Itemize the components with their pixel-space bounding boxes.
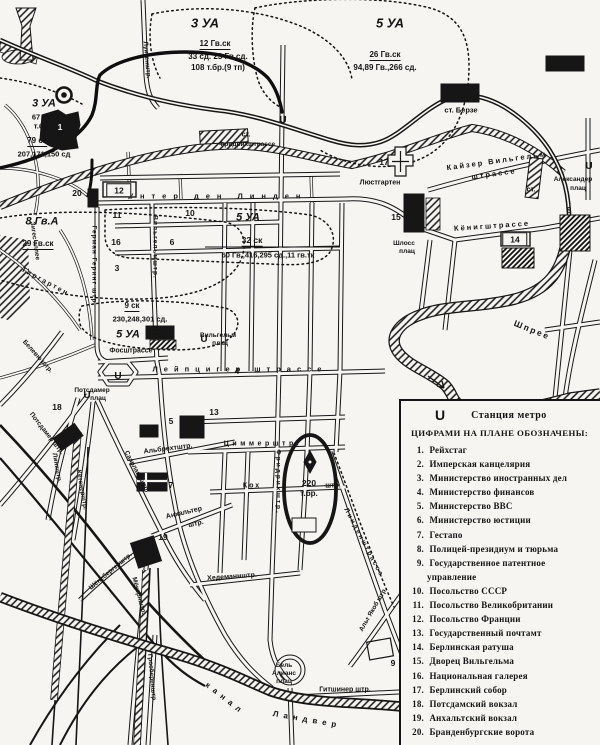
aviation-ministry-building — [180, 416, 204, 438]
street-label: плац — [276, 679, 292, 686]
brandenburg-gate-building — [88, 189, 98, 207]
unit-label: 9 ск — [124, 302, 139, 312]
street-label: Александер — [554, 177, 592, 184]
unit-label: 26 Гв.ск — [369, 51, 400, 61]
unit-5ua-center: 5 УА — [236, 213, 260, 224]
legend-item-number: 7. — [411, 528, 427, 542]
legend-item-number: 15. — [411, 654, 427, 668]
street-label: плац — [90, 396, 106, 403]
legend-item-number: 1. — [411, 443, 427, 457]
legend-item: 15. Дворец Вильгельма — [411, 654, 594, 668]
legend-item: 1. Рейхстаг — [411, 443, 594, 457]
legend-item-number: 6. — [411, 513, 427, 527]
street-label: плац — [399, 249, 415, 256]
map-marker-1: 1 — [58, 123, 63, 132]
station-friedrichstrasse-label: ст. — [242, 132, 251, 139]
metro-station-label: Станция метро — [471, 410, 547, 421]
legend-item: 14. Берлинская ратуша — [411, 640, 594, 654]
unit-label: 33 сд. 23 Гв.сд. — [188, 53, 247, 61]
unit-label: 67 гв. — [32, 113, 52, 121]
street-label: Бель — [276, 663, 292, 670]
unit-label: 60 Гв.,416,295 сд.,11 гв.тк — [222, 251, 315, 259]
building-northeast — [546, 56, 584, 71]
street-label: Лейпцигер штрассе — [153, 365, 328, 373]
map-marker-10: 10 — [185, 209, 194, 218]
unit-label: 32 ск — [242, 236, 263, 247]
legend-item: 8. Полицей-президиум и тюрьма — [411, 542, 594, 556]
legend-item: 18. Потсдамский вокзал — [411, 697, 594, 711]
legend-item: 4. Министерство финансов — [411, 485, 594, 499]
street-label: Фридрихштр. — [274, 449, 281, 515]
police-presidium-building — [560, 215, 590, 251]
metro-station-icon: U — [585, 162, 592, 172]
map-marker-14: 14 — [502, 232, 527, 246]
anhalter-bahnhof-building — [131, 536, 162, 568]
map-marker-12: 12 — [106, 183, 131, 197]
legend-item-number: 3. — [411, 471, 427, 485]
legend-item-number: 5. — [411, 499, 427, 513]
legend-item: 9. Государственное патентное управление — [411, 556, 594, 584]
legend-item: 12. Посольство Франции — [411, 612, 594, 626]
street-label: Потсдамер — [74, 388, 109, 395]
legend-item: 13. Государственный почтамт — [411, 626, 594, 640]
map-marker-13: 13 — [209, 408, 218, 417]
legend-item-number: 16. — [411, 669, 427, 683]
legend-panel: U Станция метро ЦИФРАМИ НА ПЛАНЕ ОБОЗНАЧ… — [399, 399, 600, 745]
street-label: Шлосс — [393, 241, 415, 248]
legend-item-number: 13. — [411, 626, 427, 640]
street-label: Люстгартен — [360, 180, 401, 187]
boerse-station-building — [441, 84, 479, 102]
unit-label: 94,89 Гв.,266 сд. — [353, 64, 416, 72]
unit-label: 207,171,150 сд — [18, 150, 71, 158]
legend-item-number: 11. — [411, 598, 427, 612]
map-marker-20: 20 — [72, 189, 81, 198]
unit-label: 79 ск — [27, 137, 47, 147]
map-marker-8: 8 — [567, 206, 572, 215]
street-label: Вильгельмштр. — [151, 215, 158, 278]
street-label: Гитшинер штр. — [319, 687, 371, 694]
legend-item: 17. Берлинский собор — [411, 683, 594, 697]
street-label: штр. — [325, 483, 340, 490]
legend-item-number: 18. — [411, 697, 427, 711]
unit-label: 108 т.бр.(9 тп) — [191, 64, 245, 72]
legend-item: 3. Министерство иностранных дел — [411, 471, 594, 485]
legend-item: 16. Национальная галерея — [411, 669, 594, 683]
street-label: Кох — [243, 483, 261, 490]
legend-item-number: 19. — [411, 711, 427, 725]
unit-label: 12 Гв.ск — [199, 40, 230, 50]
metro-station-icon: U — [279, 116, 286, 126]
street-label: Унтер ден Линден — [129, 192, 308, 200]
map-marker-19: 19 — [158, 533, 167, 542]
map-marker-16: 16 — [111, 238, 120, 247]
unit-5ua-south: 5 УА — [116, 330, 140, 341]
station-alexanderplatz-label: ст. — [527, 187, 536, 194]
map-marker-6: 6 — [170, 238, 175, 247]
metro-station-icon: U — [83, 391, 90, 401]
map-marker-11: 11 — [113, 211, 122, 220]
stadtschloss-building — [404, 194, 424, 232]
map-marker-2: 2 — [154, 328, 159, 337]
legend-item-number: 17. — [411, 683, 427, 697]
metro-station-icon: U — [200, 335, 207, 345]
unit-3ua-north: 3 УА — [191, 17, 219, 30]
unit-220-tbr: 220 — [302, 479, 316, 488]
metro-station-icon: U — [435, 407, 445, 423]
map-marker-5: 5 — [169, 417, 174, 426]
legend-item: 7. Гестапо — [411, 528, 594, 542]
street-label: Фосштрассе — [109, 348, 152, 355]
station-boerse-label: ст. Берзе — [444, 106, 477, 114]
legend-item-number: 8. — [411, 542, 427, 556]
street-label: Циммерштр. — [224, 441, 302, 448]
legend-item-number: 14. — [411, 640, 427, 654]
legend-item-number: 4. — [411, 485, 427, 499]
metro-station-icon: U — [114, 372, 121, 382]
map-marker-15: 15 — [391, 213, 400, 222]
legend-item-number: 2. — [411, 457, 427, 471]
legend-heading: ЦИФРАМИ НА ПЛАНЕ ОБОЗНАЧЕНЫ: — [411, 428, 594, 438]
unit-5ua-north: 5 УА — [376, 17, 404, 30]
unit-label: т.бр. — [34, 122, 50, 130]
legend-item: 5. Министерство ВВС — [411, 499, 594, 513]
map-marker-7: 7 — [169, 481, 174, 490]
map-marker-4: 4 — [235, 367, 240, 376]
rathaus-building — [502, 248, 534, 268]
map-marker-3: 3 — [115, 264, 120, 273]
street-label: Фридрихштрассе — [219, 142, 275, 149]
legend-metro-row: U Станция метро — [411, 407, 594, 423]
legend-item: 20. Бранденбургские ворота — [411, 725, 594, 739]
legend-item-number: 12. — [411, 612, 427, 626]
unit-3ua-west: 3 УА — [32, 99, 56, 110]
reich-chancellery-building — [146, 326, 174, 339]
legend-item: 6. Министерство юстиции — [411, 513, 594, 527]
unit-label: т.бр. — [300, 490, 318, 498]
legend-list: 1. Рейхстаг2. Имперская канцелярия3. Мин… — [411, 443, 594, 739]
street-label: плац — [212, 341, 228, 348]
street-label: Герман Геринг штр. — [90, 226, 97, 307]
legend-item: 10. Посольство СССР — [411, 584, 594, 598]
map-marker-18: 18 — [52, 403, 61, 412]
legend-item: 11. Посольство Великобритании — [411, 598, 594, 612]
patent-office-building — [367, 638, 394, 660]
legend-item: 19. Анхальтский вокзал — [411, 711, 594, 725]
legend-item: 2. Имперская канцелярия — [411, 457, 594, 471]
legend-item-number: 9. — [411, 556, 427, 570]
legend-item-number: 20. — [411, 725, 427, 739]
map-marker-17: 17 — [379, 158, 388, 167]
street-label: Алианс — [272, 671, 296, 678]
map-marker-9: 9 — [391, 659, 396, 668]
berlin-battle-map: 3 УА12 Гв.ск33 сд. 23 Гв.сд.108 т.бр.(9 … — [0, 0, 600, 745]
legend-item-number: 10. — [411, 584, 427, 598]
street-label: плац — [570, 186, 586, 193]
unit-label: 230,248,301 сд. — [113, 315, 168, 323]
